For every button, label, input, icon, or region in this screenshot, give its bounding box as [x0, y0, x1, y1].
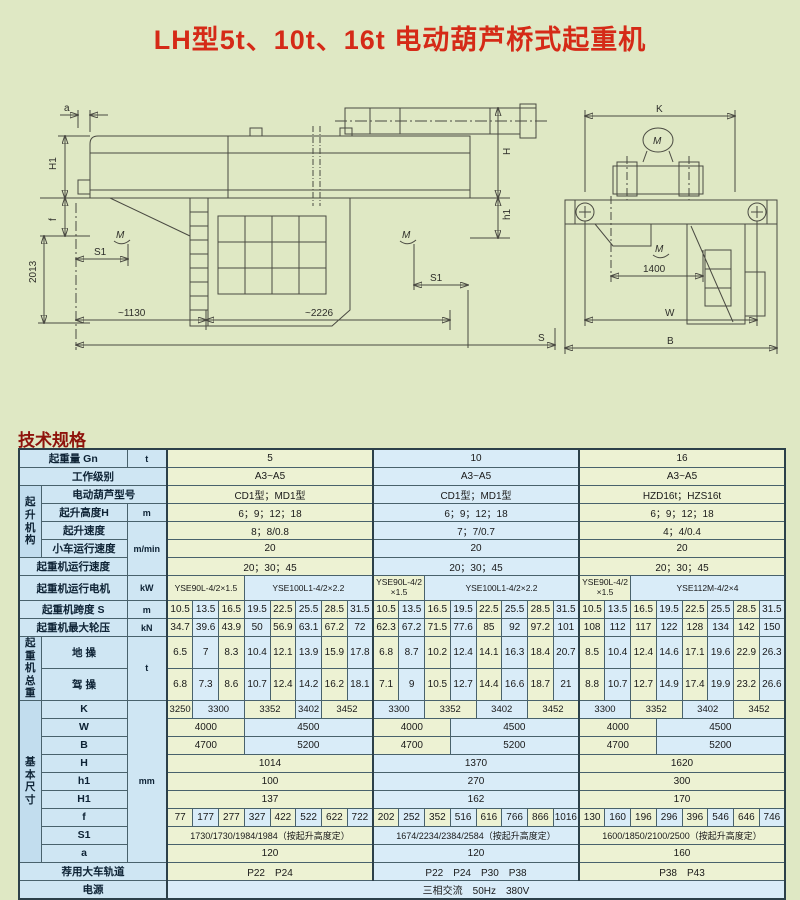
value-cell: 1600/1850/2100/2500（按起升高度定） — [579, 826, 785, 844]
unit-cell: kW — [127, 576, 167, 601]
value-cell: 3452 — [734, 700, 786, 718]
row-lift-speed: 起升速度 m/min 8；8/0.87；7/0.74；4/0.4 — [19, 522, 785, 540]
value-cell: 150 — [759, 619, 785, 637]
value-cell: 20；30；45 — [373, 558, 579, 576]
value-cell: 4000 — [373, 718, 450, 736]
group-basic-dimensions: 基本 尺寸 — [19, 700, 41, 862]
value-cell: 120 — [167, 844, 373, 862]
page-title: LH型5t、10t、16t 电动葫芦桥式起重机 — [0, 18, 800, 57]
value-cell: 8.7 — [399, 637, 425, 669]
value-cell: 28.5 — [322, 601, 348, 619]
value-cell: 3250 — [167, 700, 193, 718]
value-cell: 422 — [270, 808, 296, 826]
value-cell: 137 — [167, 790, 373, 808]
motor-mark: M — [655, 244, 664, 255]
value-cell: 130 — [579, 808, 605, 826]
group-hoist-mechanism: 起升 机构 — [19, 486, 41, 558]
row-h1-label: h1 — [41, 772, 127, 790]
value-cell: 20；30；45 — [579, 558, 785, 576]
value-cell: 14.4 — [476, 668, 502, 700]
value-cell: A3~A5 — [579, 468, 785, 486]
value-cell: 352 — [425, 808, 451, 826]
row-duty-label: 工作级别 — [19, 468, 167, 486]
value-cell: 162 — [373, 790, 579, 808]
value-cell: 18.1 — [347, 668, 373, 700]
value-cell: 8.3 — [219, 637, 245, 669]
value-cell: 9 — [399, 668, 425, 700]
row-a-label: a — [41, 844, 127, 862]
value-cell: 62.3 — [373, 619, 399, 637]
value-cell: 10.5 — [167, 601, 193, 619]
value-cell: 16.6 — [502, 668, 528, 700]
value-cell: 766 — [502, 808, 528, 826]
value-cell: 516 — [450, 808, 476, 826]
dim-1400: 1400 — [643, 264, 666, 275]
value-cell: 43.9 — [219, 619, 245, 637]
value-cell: 327 — [244, 808, 270, 826]
value-cell: 866 — [528, 808, 554, 826]
row-lift-height-label: 起升高度H — [41, 504, 127, 522]
motor-mark: M — [116, 230, 125, 241]
value-cell: 3352 — [244, 700, 296, 718]
value-cell: 6.8 — [373, 637, 399, 669]
value-cell: 8.6 — [219, 668, 245, 700]
value-cell: 31.5 — [347, 601, 373, 619]
row-duty: 工作级别 A3~A5A3~A5A3~A5 — [19, 468, 785, 486]
value-cell: 13.9 — [296, 637, 322, 669]
value-cell: 128 — [682, 619, 708, 637]
value-cell: 17.4 — [682, 668, 708, 700]
row-span: 起重机跨度 S m 10.513.516.519.522.525.528.531… — [19, 601, 785, 619]
value-cell: 4500 — [450, 718, 579, 736]
row-capacity: 起重量 Gn t 51016 — [19, 449, 785, 468]
row-hoist-model-label: 电动葫芦型号 — [41, 486, 167, 504]
dim-W: W — [665, 308, 675, 319]
end-view-drawing: K M M 1400 W B — [555, 100, 795, 375]
value-cell: 16.5 — [219, 601, 245, 619]
value-cell: 1014 — [167, 754, 373, 772]
value-cell: 12.1 — [270, 637, 296, 669]
power-value-cell: 三相交流 50Hz 380V — [167, 880, 785, 899]
value-cell: 396 — [682, 808, 708, 826]
value-cell: 20 — [373, 540, 579, 558]
row-k-label: K — [41, 700, 127, 718]
value-cell: 1016 — [553, 808, 579, 826]
row-wheel-load-label: 起重机最大轮压 — [19, 619, 127, 637]
row-cab-op-label: 驾 操 — [41, 668, 127, 700]
value-cell: 170 — [579, 790, 785, 808]
value-cell: 10.5 — [373, 601, 399, 619]
value-cell: 63.1 — [296, 619, 322, 637]
value-cell: 646 — [734, 808, 760, 826]
row-lift-speed-label: 起升速度 — [41, 522, 127, 540]
value-cell: 270 — [373, 772, 579, 790]
value-cell: 5200 — [656, 736, 785, 754]
group-total-weight: 起重 机 总重 — [19, 637, 41, 701]
value-cell: 13.5 — [399, 601, 425, 619]
value-cell: 25.5 — [296, 601, 322, 619]
value-cell: 202 — [373, 808, 399, 826]
value-cell: 4000 — [167, 718, 244, 736]
spec-table: 起重量 Gn t 51016 工作级别 A3~A5A3~A5A3~A5 起升 机… — [18, 448, 786, 900]
motor-cell: YSE90L-4/2×1.5 — [167, 576, 244, 601]
row-capacity-label: 起重量 Gn — [19, 449, 127, 468]
row-H1-label: H1 — [41, 790, 127, 808]
value-cell: 277 — [219, 808, 245, 826]
value-cell: 23.2 — [734, 668, 760, 700]
row-ground-op-label: 地 操 — [41, 637, 127, 669]
motor-cell: YSE90L-4/2×1.5 — [579, 576, 631, 601]
value-cell: 10.7 — [605, 668, 631, 700]
value-cell: 3452 — [528, 700, 580, 718]
value-cell: 177 — [193, 808, 219, 826]
value-cell: 14.2 — [296, 668, 322, 700]
value-cell: 120 — [373, 844, 579, 862]
value-cell: 196 — [631, 808, 657, 826]
value-cell: 12.4 — [631, 637, 657, 669]
value-cell: 12.7 — [450, 668, 476, 700]
row-power: 电源 三相交流 50Hz 380V — [19, 880, 785, 899]
motor-mark: M — [402, 230, 411, 241]
row-hoist-model: 起升 机构 电动葫芦型号 CD1型；MD1型CD1型；MD1型HZD16t；HZ… — [19, 486, 785, 504]
value-cell: 56.9 — [270, 619, 296, 637]
value-cell: 4000 — [579, 718, 656, 736]
motor-mark: M — [653, 136, 662, 147]
row-dim-k: 基本 尺寸 K mm 32503300335234023452330033523… — [19, 700, 785, 718]
value-cell: P22 P24 — [167, 862, 373, 880]
page: LH型5t、10t、16t 电动葫芦桥式起重机 — [0, 0, 800, 900]
value-cell: 19.5 — [656, 601, 682, 619]
value-cell: 142 — [734, 619, 760, 637]
dim-S1-left: S1 — [94, 247, 107, 258]
value-cell: 10.2 — [425, 637, 451, 669]
value-cell: 31.5 — [759, 601, 785, 619]
row-s1-label: S1 — [41, 826, 127, 844]
value-cell: 1674/2234/2384/2584（按起升高度定） — [373, 826, 579, 844]
row-span-label: 起重机跨度 S — [19, 601, 127, 619]
value-cell: 7.1 — [373, 668, 399, 700]
value-cell: P22 P24 P30 P38 — [373, 862, 579, 880]
value-cell: 3300 — [373, 700, 425, 718]
value-cell: 4500 — [656, 718, 785, 736]
value-cell: A3~A5 — [373, 468, 579, 486]
value-cell: 8.8 — [579, 668, 605, 700]
value-cell: 72 — [347, 619, 373, 637]
row-wheel-load: 起重机最大轮压 kN 34.739.643.95056.963.167.2726… — [19, 619, 785, 637]
row-w-label: W — [41, 718, 127, 736]
dim-S: S — [538, 333, 545, 344]
value-cell: 746 — [759, 808, 785, 826]
unit-cell: t — [127, 449, 167, 468]
value-cell: 6；9；12；18 — [167, 504, 373, 522]
value-cell: 85 — [476, 619, 502, 637]
value-cell: 7；7/0.7 — [373, 522, 579, 540]
value-cell: 67.2 — [399, 619, 425, 637]
dim-H1: H1 — [48, 157, 59, 170]
value-cell: 22.5 — [476, 601, 502, 619]
value-cell: 6；9；12；18 — [579, 504, 785, 522]
value-cell: 16.5 — [425, 601, 451, 619]
value-cell: 16 — [579, 449, 785, 468]
value-cell: 20.7 — [553, 637, 579, 669]
value-cell: 19.6 — [708, 637, 734, 669]
value-cell: 14.6 — [656, 637, 682, 669]
dim-H: H — [502, 148, 513, 155]
value-cell: 5200 — [450, 736, 579, 754]
value-cell: 18.7 — [528, 668, 554, 700]
value-cell: 122 — [656, 619, 682, 637]
value-cell: CD1型；MD1型 — [167, 486, 373, 504]
value-cell: 97.2 — [528, 619, 554, 637]
value-cell: 3352 — [631, 700, 683, 718]
row-lift-height: 起升高度H m 6；9；12；186；9；12；186；9；12；18 — [19, 504, 785, 522]
row-crane-speed-label: 起重机运行速度 — [19, 558, 127, 576]
value-cell: 92 — [502, 619, 528, 637]
value-cell: 26.3 — [759, 637, 785, 669]
dim-1130: ~1130 — [118, 308, 146, 319]
value-cell: 546 — [708, 808, 734, 826]
value-cell: 10.4 — [605, 637, 631, 669]
value-cell: 16.3 — [502, 637, 528, 669]
value-cell: 8.5 — [579, 637, 605, 669]
value-cell: 3402 — [296, 700, 322, 718]
value-cell: 6.5 — [167, 637, 193, 669]
value-cell: 16.2 — [322, 668, 348, 700]
value-cell: 22.9 — [734, 637, 760, 669]
value-cell: 19.9 — [708, 668, 734, 700]
value-cell: 6.8 — [167, 668, 193, 700]
value-cell: 10.4 — [244, 637, 270, 669]
value-cell: 17.1 — [682, 637, 708, 669]
value-cell: 5 — [167, 449, 373, 468]
value-cell: 71.5 — [425, 619, 451, 637]
value-cell: 252 — [399, 808, 425, 826]
value-cell: 16.5 — [631, 601, 657, 619]
unit-cell: m/min — [127, 522, 167, 576]
value-cell: 10.5 — [579, 601, 605, 619]
value-cell: 22.5 — [270, 601, 296, 619]
value-cell: 160 — [605, 808, 631, 826]
value-cell: 7.3 — [193, 668, 219, 700]
row-b-label: B — [41, 736, 127, 754]
dim-a: a — [64, 103, 70, 114]
row-trolley-speed-label: 小车运行速度 — [41, 540, 127, 558]
row-power-label: 电源 — [19, 880, 167, 899]
motor-cell: YSE112M-4/2×4 — [631, 576, 786, 601]
value-cell: 6；9；12；18 — [373, 504, 579, 522]
value-cell: 8；8/0.8 — [167, 522, 373, 540]
value-cell: 20 — [579, 540, 785, 558]
value-cell: 3300 — [193, 700, 245, 718]
value-cell: A3~A5 — [167, 468, 373, 486]
row-f-label: f — [41, 808, 127, 826]
value-cell: 3300 — [579, 700, 631, 718]
value-cell: 4500 — [244, 718, 373, 736]
value-cell: 20 — [167, 540, 373, 558]
dim-h1: h1 — [502, 208, 513, 220]
value-cell: 3452 — [322, 700, 374, 718]
unit-cell: kN — [127, 619, 167, 637]
value-cell: 20；30；45 — [167, 558, 373, 576]
value-cell: 67.2 — [322, 619, 348, 637]
value-cell: P38 P43 — [579, 862, 785, 880]
value-cell: 1370 — [373, 754, 579, 772]
value-cell: 3402 — [476, 700, 528, 718]
value-cell: 17.8 — [347, 637, 373, 669]
value-cell: 26.6 — [759, 668, 785, 700]
value-cell: 25.5 — [708, 601, 734, 619]
value-cell: 622 — [322, 808, 348, 826]
value-cell: 19.5 — [450, 601, 476, 619]
value-cell: 7 — [193, 637, 219, 669]
value-cell: 77 — [167, 808, 193, 826]
value-cell: 34.7 — [167, 619, 193, 637]
value-cell: 1620 — [579, 754, 785, 772]
motor-cell: YSE100L1-4/2×2.2 — [425, 576, 580, 601]
value-cell: 300 — [579, 772, 785, 790]
value-cell: 522 — [296, 808, 322, 826]
row-ground-weight: 起重 机 总重 地 操 t 6.578.310.412.113.915.917.… — [19, 637, 785, 669]
value-cell: 1730/1730/1984/1984（按起升高度定） — [167, 826, 373, 844]
dim-B: B — [667, 336, 674, 347]
value-cell: 722 — [347, 808, 373, 826]
value-cell: 10 — [373, 449, 579, 468]
value-cell: 18.4 — [528, 637, 554, 669]
unit-cell: m — [127, 601, 167, 619]
value-cell: 5200 — [244, 736, 373, 754]
dim-2226: ~2226 — [305, 308, 334, 319]
dim-S1-right: S1 — [430, 273, 443, 284]
value-cell: 100 — [167, 772, 373, 790]
value-cell: 31.5 — [553, 601, 579, 619]
value-cell: 296 — [656, 808, 682, 826]
value-cell: 22.5 — [682, 601, 708, 619]
motor-cell: YSE100L1-4/2×2.2 — [244, 576, 373, 601]
value-cell: 10.5 — [425, 668, 451, 700]
row-crane-motor: 起重机运行电机 kW YSE90L-4/2×1.5 YSE100L1-4/2×2… — [19, 576, 785, 601]
value-cell: 39.6 — [193, 619, 219, 637]
row-rail: 荐用大车轨道 P22 P24P22 P24 P30 P38P38 P43 — [19, 862, 785, 880]
value-cell: 19.5 — [244, 601, 270, 619]
row-h-label: H — [41, 754, 127, 772]
value-cell: 4700 — [167, 736, 244, 754]
value-cell: 101 — [553, 619, 579, 637]
value-cell: CD1型；MD1型 — [373, 486, 579, 504]
row-rail-label: 荐用大车轨道 — [19, 862, 167, 880]
value-cell: 15.9 — [322, 637, 348, 669]
row-crane-motor-label: 起重机运行电机 — [19, 576, 127, 601]
value-cell: 134 — [708, 619, 734, 637]
dim-f: f — [48, 218, 59, 221]
value-cell: 4700 — [579, 736, 656, 754]
value-cell: 77.6 — [450, 619, 476, 637]
value-cell: 50 — [244, 619, 270, 637]
value-cell: 25.5 — [502, 601, 528, 619]
value-cell: HZD16t；HZS16t — [579, 486, 785, 504]
unit-cell: t — [127, 637, 167, 701]
dim-K: K — [656, 104, 663, 115]
value-cell: 13.5 — [193, 601, 219, 619]
value-cell: 108 — [579, 619, 605, 637]
value-cell: 21 — [553, 668, 579, 700]
unit-cell: m — [127, 504, 167, 522]
value-cell: 10.7 — [244, 668, 270, 700]
value-cell: 14.9 — [656, 668, 682, 700]
value-cell: 4700 — [373, 736, 450, 754]
unit-cell: mm — [127, 700, 167, 862]
value-cell: 28.5 — [528, 601, 554, 619]
value-cell: 12.4 — [270, 668, 296, 700]
dim-2013: 2013 — [28, 260, 39, 283]
value-cell: 12.7 — [631, 668, 657, 700]
value-cell: 14.1 — [476, 637, 502, 669]
value-cell: 160 — [579, 844, 785, 862]
value-cell: 112 — [605, 619, 631, 637]
value-cell: 4；4/0.4 — [579, 522, 785, 540]
value-cell: 117 — [631, 619, 657, 637]
value-cell: 616 — [476, 808, 502, 826]
value-cell: 3352 — [425, 700, 477, 718]
value-cell: 13.5 — [605, 601, 631, 619]
motor-cell: YSE90L-4/2×1.5 — [373, 576, 425, 601]
value-cell: 3402 — [682, 700, 734, 718]
value-cell: 28.5 — [734, 601, 760, 619]
value-cell: 12.4 — [450, 637, 476, 669]
side-view-drawing: M M a H1 f 2013 S1 S1 ~1130 ~ — [10, 98, 560, 403]
